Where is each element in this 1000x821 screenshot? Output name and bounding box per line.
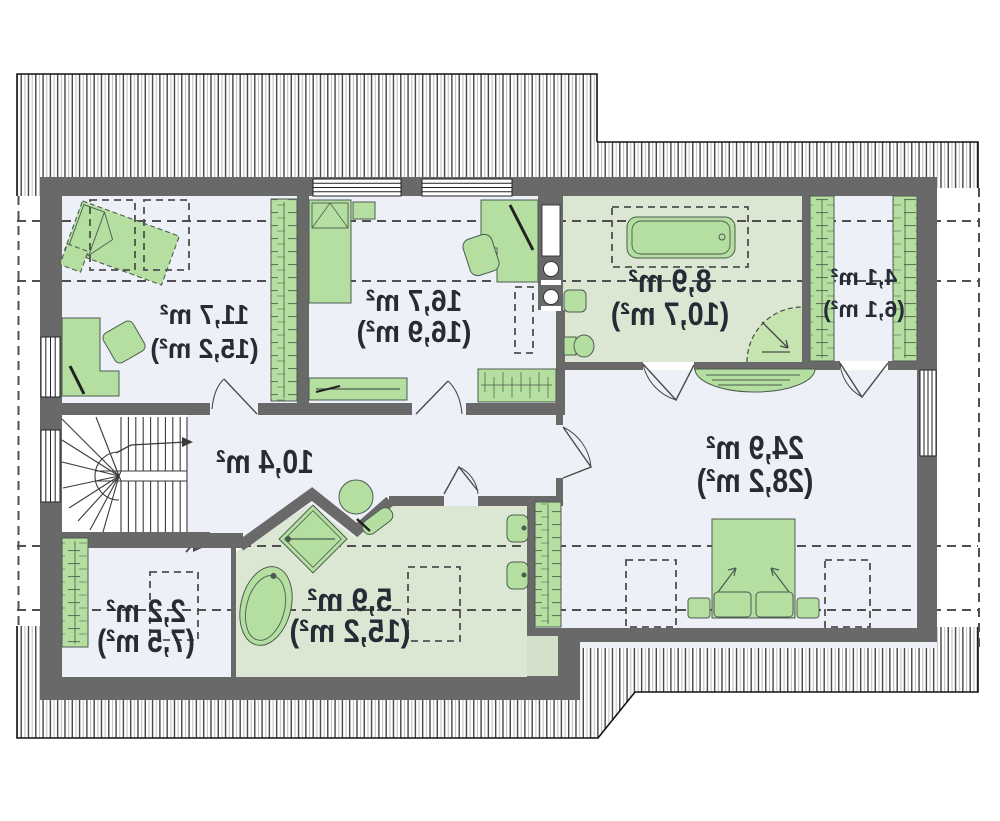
svg-text:11,7 m²: 11,7 m² (160, 298, 249, 330)
svg-text:(6,1 m²): (6,1 m²) (823, 296, 905, 322)
svg-text:(16,9 m²): (16,9 m²) (357, 315, 472, 350)
svg-text:4,1 m²: 4,1 m² (830, 264, 897, 290)
svg-text:(15,2 m²): (15,2 m²) (150, 332, 258, 364)
svg-text:(7,5 m²): (7,5 m²) (97, 624, 195, 659)
svg-text:10,4 m²: 10,4 m² (216, 443, 314, 481)
svg-text:16,7 m²: 16,7 m² (366, 284, 462, 319)
svg-text:(28,2 m²): (28,2 m²) (697, 462, 814, 500)
svg-text:8,9 m²: 8,9 m² (628, 264, 711, 300)
svg-text:(10,7 m²): (10,7 m²) (611, 297, 729, 333)
svg-text:(15,2 m²): (15,2 m²) (289, 613, 410, 649)
svg-text:24,9 m²: 24,9 m² (706, 429, 804, 467)
